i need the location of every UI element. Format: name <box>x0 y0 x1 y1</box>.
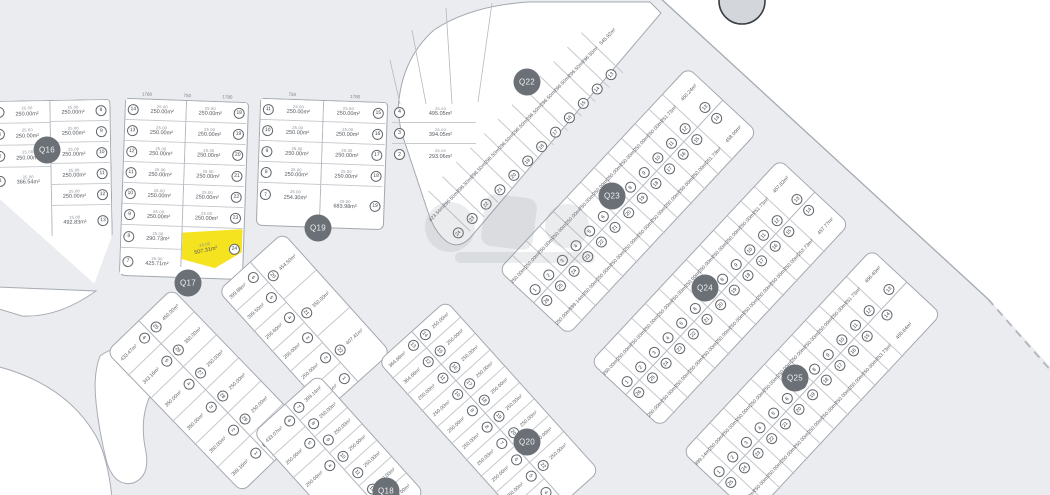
lot-area: 250.00m² <box>548 443 568 462</box>
lot-area: 507.31m² <box>194 245 218 256</box>
lot-area: 250.00m² <box>198 132 221 139</box>
dimension-label: 1380 <box>16 93 26 98</box>
lot-area: 250.00m² <box>149 151 172 158</box>
lot-number: 20 <box>791 402 807 418</box>
lot-number: 16 <box>845 343 861 359</box>
lot-number: 22 <box>332 342 348 358</box>
lot-area: 250.00m² <box>147 214 170 221</box>
lot-cell[interactable]: 25.00250.00m²16 <box>323 122 386 145</box>
lot-number: 14 <box>709 111 725 127</box>
lot-area: 350.00m² <box>183 326 202 345</box>
lot-number: 4 <box>181 376 197 392</box>
lot-area: 256.60m² <box>264 322 284 341</box>
lot-area: 250.00m² <box>15 111 38 118</box>
lot-area: 250.00m² <box>148 172 171 179</box>
road-wedge-island <box>0 287 96 316</box>
lot-cell[interactable]: 1025.00250.00m² <box>260 120 323 143</box>
block-badge-q22[interactable]: Q22 <box>514 69 541 96</box>
lot-area: 455.84m² <box>895 321 914 341</box>
lot-area: 250.00m² <box>362 450 382 469</box>
lot-area: 250.00m² <box>284 172 307 179</box>
lot-number: 9 <box>320 432 336 448</box>
lot-number: 3 <box>394 128 405 139</box>
lot-area: 250.00m² <box>334 174 357 181</box>
lot-area: 290.73m² <box>146 236 169 243</box>
lot-area: 450.24m² <box>680 83 699 103</box>
lot-cell[interactable]: 25.00250.00m²11 <box>51 163 109 185</box>
lot-number: 3 <box>203 399 219 415</box>
lot-number: 1 <box>336 370 352 386</box>
lot-number: 11 <box>97 168 108 179</box>
lot-cell[interactable]: 1025.00250.00m² <box>122 183 183 206</box>
lot-area: 250.00m² <box>347 434 367 453</box>
lot-number: 11 <box>263 103 274 114</box>
lot-number: 18 <box>370 170 381 181</box>
lot-number: 13 <box>127 124 138 135</box>
lot-number: 10 <box>125 187 136 198</box>
lot-area: 399.16m² <box>230 459 249 478</box>
lot-number: 17 <box>461 376 477 392</box>
lot-number: 2 <box>0 151 5 162</box>
lot-number: 13 <box>405 337 421 353</box>
lot-cell[interactable]: 25.00250.00m²18 <box>321 164 384 187</box>
lot-number: 9 <box>124 208 135 219</box>
lot-area: 454.50m² <box>277 253 297 272</box>
lot-area: 250.00m² <box>430 311 450 330</box>
lot-number: 5 <box>302 435 318 451</box>
highlighted-lot[interactable]: 28.00507.31m²24 <box>181 227 242 269</box>
lot-number: 26 <box>631 385 647 401</box>
lot-number: 7 <box>291 399 307 415</box>
lot-area: 250.00m² <box>519 409 539 428</box>
lot-number: 18 <box>648 176 664 192</box>
lot-number: 20 <box>232 149 243 160</box>
lot-area: 450.00m² <box>161 303 180 322</box>
lot-number: 21 <box>777 417 793 433</box>
lot-number: 18 <box>740 268 756 284</box>
lot-area: 433.47m² <box>119 343 138 362</box>
lot-number: 17 <box>832 358 848 374</box>
lot-number: 14 <box>589 82 605 98</box>
lot-number: 21 <box>231 170 242 181</box>
lot-number: 19 <box>520 154 536 170</box>
lot-area: 350.00m² <box>163 390 182 409</box>
lot-number: 3 <box>300 330 316 346</box>
lot-area: 253.73m² <box>796 238 815 258</box>
lot-area: 250.00m² <box>431 399 451 418</box>
lot-area: 250.00m² <box>16 133 39 140</box>
lot-number: 11 <box>350 465 366 481</box>
lot-cell[interactable]: 25.00250.00m²9 <box>51 121 109 143</box>
lot-number: 16 <box>447 359 463 375</box>
lot-number: 15 <box>432 343 448 359</box>
lot-area: 250.00m² <box>475 360 495 379</box>
lot-number: 3 <box>0 129 5 140</box>
lot-area: 250.00m² <box>287 109 310 116</box>
lot-cell[interactable]: 925.00250.00m² <box>122 204 183 227</box>
lot-area: 253.73m² <box>874 343 893 363</box>
lot-area: 495.05m² <box>429 111 452 117</box>
lot-number: 4 <box>0 107 5 118</box>
lot-number: 18 <box>476 392 492 408</box>
lot-number: 29 <box>237 411 253 427</box>
lot-number: 15 <box>689 132 705 148</box>
lot-area: 407.41m² <box>345 328 365 347</box>
lot-area: 350.00m² <box>208 436 227 455</box>
lot-number: 22 <box>764 431 780 447</box>
lot-number: 20 <box>265 268 281 284</box>
lot-area: 250.00m² <box>196 174 219 181</box>
lot-cell[interactable]: 25.00250.00m²23 <box>183 206 244 229</box>
roundabout <box>719 0 765 24</box>
lot-area: 250.00m² <box>335 153 358 160</box>
lot-number: 11 <box>435 370 451 386</box>
lot-cell[interactable]: 25.00250.00m²17 <box>322 143 385 166</box>
lot-number: 2 <box>394 149 405 160</box>
lot-area: 250.00m² <box>505 481 525 495</box>
lot-number: 8 <box>95 105 106 116</box>
lot-number: 16 <box>767 239 783 255</box>
block-q16: 13801180425.00250.00m²325.00250.00m²225.… <box>0 99 114 291</box>
lot-number: 6 <box>136 330 152 346</box>
lot-number: 15 <box>373 107 384 118</box>
lot-area: 366.54m² <box>17 179 40 186</box>
lot-number: 16 <box>372 128 383 139</box>
lot-number: 24 <box>229 243 240 254</box>
dimension-label: 1780 <box>142 91 152 96</box>
lot-number: 25 <box>644 370 660 386</box>
lot-number: 5 <box>264 290 280 306</box>
top-dimension-labels: 13801180 <box>0 92 109 99</box>
block-badge-q20[interactable]: Q20 <box>514 429 541 456</box>
lot-area: 251.73m² <box>752 197 771 217</box>
boundary-dashed-line <box>988 299 1050 372</box>
lot-area: 350.00m² <box>185 413 204 432</box>
lot-number: 4 <box>394 107 405 118</box>
lot-number: 11 <box>125 166 136 177</box>
lot-number: 14 <box>128 103 139 114</box>
lot-area: 250.00m² <box>282 342 302 361</box>
block-q19: 75017801125.00250.00m²1025.00250.00m²925… <box>256 98 388 230</box>
dimension-label: 750 <box>288 92 296 97</box>
lot-number: 17 <box>547 125 563 141</box>
lot-number: 12 <box>420 354 436 370</box>
lot-cell[interactable]: 725.00425.71m² <box>120 248 181 276</box>
bottom-left-parcel <box>0 366 112 495</box>
lot-area: 250.00m² <box>62 152 85 159</box>
lot-area: 457.82m² <box>772 175 791 195</box>
lot-area: 250.00m² <box>336 132 359 139</box>
lot-cell[interactable]: 25.00250.00m²12 <box>52 184 110 206</box>
lot-area: 399.14m² <box>303 385 323 404</box>
lot-area: 456.40m² <box>864 265 883 285</box>
lot-area: 458.00m² <box>724 124 743 144</box>
lot-number: 21 <box>299 305 315 321</box>
lot-area: 545.92m² <box>598 27 617 46</box>
lot-number: 22 <box>231 191 242 202</box>
lot-cell[interactable]: 1125.00250.00m² <box>261 99 324 122</box>
lot-number: 6 <box>246 270 262 286</box>
lot-area: 296.50m² <box>581 46 600 65</box>
lot-area: 250.00m² <box>305 470 325 489</box>
lot-number: 23 <box>750 446 766 462</box>
block-badge-q24[interactable]: Q24 <box>692 275 719 302</box>
block-badge-q16[interactable]: Q16 <box>34 137 61 164</box>
lot-number: 22 <box>685 327 701 343</box>
lot-area: 250.00m² <box>150 109 173 116</box>
lot-area: 399.88m² <box>228 282 248 301</box>
lot-area: 250.00m² <box>195 216 218 223</box>
lot-number: 2 <box>225 422 241 438</box>
lot-area: 250.00m² <box>445 328 465 347</box>
lot-cell[interactable]: 825.00250.00m² <box>258 162 321 185</box>
lot-cell[interactable]: 25.00250.00m²8 <box>50 100 108 122</box>
lot-number: 10 <box>335 448 351 464</box>
dimension-label: 1180 <box>75 92 85 97</box>
lot-number: 10 <box>450 386 466 402</box>
lot-number: 22 <box>535 458 551 474</box>
lot-number: 16 <box>675 147 691 163</box>
lot-number: 19 <box>726 283 742 299</box>
lot-area: 250.00m² <box>504 393 524 412</box>
lot-number: 27 <box>192 365 208 381</box>
lot-number: 26 <box>170 342 186 358</box>
lot-number: 5 <box>159 353 175 369</box>
lot-number: 26 <box>539 293 555 309</box>
lot-area: 250.00m² <box>62 173 85 180</box>
lot-area: 250.00m² <box>150 130 173 137</box>
lot-cell[interactable]: 825.00290.73m² <box>121 225 182 250</box>
lot-cell[interactable]: 25.00683.98m²19 <box>320 185 383 225</box>
lot-area: 250.00m² <box>63 194 86 201</box>
lot-area: 425.71m² <box>145 261 168 268</box>
lot-number: 23 <box>230 212 241 223</box>
lot-area: 250.00m² <box>227 372 246 391</box>
lot-number: 17 <box>661 161 677 177</box>
lot-number: 13 <box>603 67 619 83</box>
lot-area: 364.66m² <box>387 350 407 369</box>
lot-area: 250.00m² <box>62 131 85 138</box>
lot-number: 19 <box>233 128 244 139</box>
lot-area: 394.05m² <box>429 132 452 138</box>
block-badge-q25[interactable]: Q25 <box>782 365 809 392</box>
lot-number: 9 <box>464 403 480 419</box>
lot-area: 250.00m² <box>198 111 221 118</box>
lot-number: 8 <box>479 419 495 435</box>
lot-number: 24 <box>736 460 752 476</box>
lot-area: 251.73m² <box>844 287 863 307</box>
lot-number: 7 <box>122 255 133 266</box>
lot-number: 19 <box>634 191 650 207</box>
lot-number: 15 <box>859 329 875 345</box>
lot-cell[interactable]: 925.00250.00m² <box>259 141 322 164</box>
subdivision-map: 13801180425.00250.00m²325.00250.00m²225.… <box>0 0 1050 495</box>
lot-area: 250.00m² <box>460 344 480 363</box>
lot-number: 19 <box>369 200 380 211</box>
lot-number: 20 <box>713 297 729 313</box>
lot-area: 251.73m² <box>660 105 679 125</box>
lot-number: 18 <box>818 373 834 389</box>
lot-number: 8 <box>123 230 134 241</box>
lot-number: 24 <box>658 356 674 372</box>
dimension-label: 1780 <box>350 94 360 99</box>
lot-number: 15 <box>575 96 591 112</box>
lot-cell[interactable]: 1425.00250.00m² <box>125 99 186 122</box>
lot-area: 399.50m² <box>246 302 266 321</box>
lot-area: 251.73m² <box>704 146 723 166</box>
lot-number: 10 <box>262 124 273 135</box>
block-q17: 178075017801425.00250.00m²1325.00250.00m… <box>119 98 249 280</box>
lot-number: 9 <box>261 145 272 156</box>
lot-number: 14 <box>879 307 895 323</box>
lot-area: 254.30m² <box>284 194 307 201</box>
lot-number: 19 <box>491 408 507 424</box>
lot-area: 250.00m² <box>461 432 481 451</box>
lot-cell[interactable]: 25.00492.83m²13 <box>52 205 111 236</box>
lot-area: 492.83m² <box>63 220 86 227</box>
lot-number: 17 <box>371 149 382 160</box>
lot-number: 25 <box>148 319 164 335</box>
lot-number: 4 <box>322 458 338 474</box>
lot-cell[interactable]: 25.00250.00m²21 <box>184 164 245 187</box>
lot-cell[interactable]: 25.00250.00m²15 <box>323 101 386 124</box>
lot-number: 20 <box>506 168 522 184</box>
lot-area: 250.00m² <box>489 377 509 396</box>
lot-area: 250.00m² <box>195 195 218 202</box>
lot-area: 433.07m² <box>264 425 284 444</box>
lot-number: 25 <box>723 475 739 491</box>
lot-number: 19 <box>805 387 821 403</box>
lot-cell[interactable]: 1225.00250.00m² <box>124 141 185 164</box>
lot-number: 10 <box>96 147 107 158</box>
lot-number: 24 <box>566 264 582 280</box>
lot-number: 14 <box>801 203 817 219</box>
lot-number: 14 <box>417 327 433 343</box>
lot-number: 5 <box>523 468 539 484</box>
lot-area: 250.00m² <box>337 111 360 118</box>
lot-cell[interactable]: 25.00250.00m²18 <box>186 101 247 124</box>
lot-number: 9 <box>96 126 107 137</box>
lot-number: 8 <box>306 416 322 432</box>
lot-area: 250.00m² <box>416 383 436 402</box>
lot-area: 293.06m² <box>429 154 452 160</box>
lot-number: 13 <box>97 215 108 226</box>
dimension-label: 750 <box>183 93 191 98</box>
lot-number: 17 <box>753 253 769 269</box>
lot-number: 7 <box>260 189 271 200</box>
lot-area: 250.00m² <box>147 193 170 200</box>
lot-area: 364.66m² <box>402 367 422 386</box>
block-badge-q19[interactable]: Q19 <box>305 215 332 242</box>
lot-number: 6 <box>282 413 298 429</box>
lot-area: 457.77m² <box>816 216 835 236</box>
watermark <box>425 188 625 266</box>
block-badge-q23[interactable]: Q23 <box>599 183 626 210</box>
lot-cell[interactable]: 425.00495.05m² <box>392 102 476 123</box>
lot-area: 683.98m² <box>333 204 356 211</box>
lot-area: 250.00m² <box>286 130 309 137</box>
lot-cell[interactable]: 425.00250.00m² <box>0 101 50 124</box>
lot-area: 350.00m² <box>311 290 331 309</box>
lot-area: 250.00m² <box>197 153 220 160</box>
lot-area: 250.00m² <box>61 110 84 117</box>
lot-area: 250.00m² <box>332 418 352 437</box>
lot-cell[interactable]: 25.00250.00m²22 <box>183 185 244 208</box>
lot-number: 1 <box>0 175 6 186</box>
lot-area: 250.00m² <box>490 465 510 484</box>
lot-area: 250.00m² <box>205 349 224 368</box>
lot-area: 343.16m² <box>141 366 160 385</box>
lot-cell[interactable]: 325.00394.05m² <box>392 123 476 144</box>
lot-number: 18 <box>234 107 245 118</box>
lot-number: 16 <box>561 110 577 126</box>
lot-number: 23 <box>672 341 688 357</box>
lot-number: 15 <box>781 224 797 240</box>
lot-number: 28 <box>215 388 231 404</box>
lot-area: 250.00m² <box>284 447 304 466</box>
lot-area: 250.00m² <box>250 395 269 414</box>
lot-area: 250.00m² <box>318 401 338 420</box>
lot-cell[interactable]: 1125.00250.00m² <box>123 162 184 185</box>
lot-cell[interactable]: 25.00250.00m²19 <box>186 122 247 145</box>
lot-cell[interactable]: 725.00254.30m² <box>258 183 321 208</box>
lot-cell[interactable]: 1325.00250.00m² <box>125 120 186 143</box>
lot-number: 1 <box>248 445 264 461</box>
lot-number: 7 <box>494 435 510 451</box>
dimension-label: 1780 <box>222 94 232 99</box>
lot-area: 250.00m² <box>285 151 308 158</box>
lot-number: 12 <box>97 189 108 200</box>
lot-number: 4 <box>282 310 298 326</box>
lot-number: 2 <box>318 350 334 366</box>
lot-number: 8 <box>260 166 271 177</box>
lot-cell[interactable]: 25.00250.00m²20 <box>185 143 246 166</box>
lot-number: 25 <box>552 278 568 294</box>
lot-number: 18 <box>534 139 550 155</box>
lot-area: 250.00m² <box>475 448 495 467</box>
lot-cell[interactable]: 125.00366.54m² <box>0 167 51 194</box>
lot-number: 21 <box>699 312 715 328</box>
lot-number: 12 <box>126 145 137 156</box>
lot-area: 250.00m² <box>446 416 466 435</box>
block-badge-q17[interactable]: Q17 <box>175 270 202 297</box>
